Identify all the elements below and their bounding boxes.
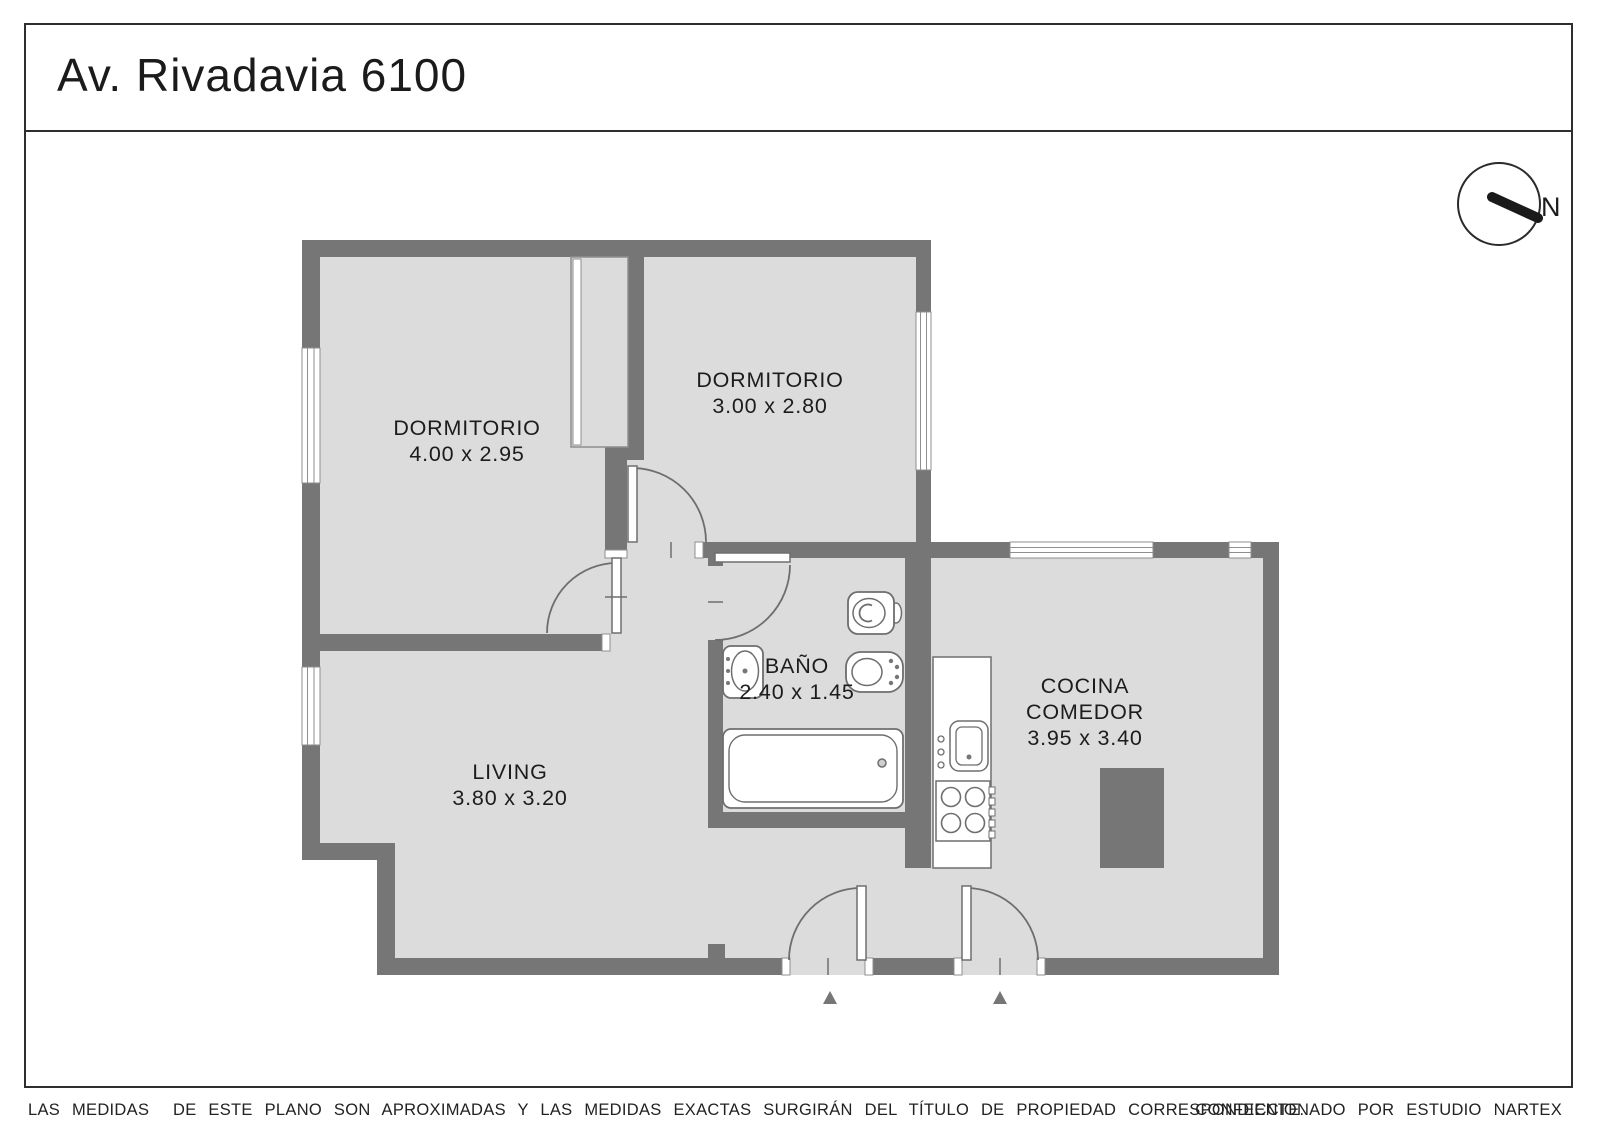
window-living bbox=[302, 667, 320, 745]
room-name: LIVING bbox=[452, 759, 567, 785]
stove-icon bbox=[936, 781, 995, 841]
jamb bbox=[782, 958, 790, 975]
wall-segment bbox=[302, 240, 320, 860]
room-name: BAÑO bbox=[739, 653, 854, 679]
room-label-cocina: COCINA COMEDOR 3.95 x 3.40 bbox=[1026, 673, 1144, 751]
wall-segment bbox=[1037, 958, 1279, 975]
wall-segment bbox=[605, 460, 627, 558]
wall-segment bbox=[377, 958, 790, 975]
room-name: DORMITORIO bbox=[393, 415, 540, 441]
room-name: DORMITORIO bbox=[696, 367, 843, 393]
compass-icon bbox=[1458, 163, 1540, 245]
wall-segment bbox=[916, 470, 931, 542]
north-label: N bbox=[1541, 192, 1561, 223]
wall-segment bbox=[708, 944, 725, 959]
entry-arrows bbox=[823, 991, 1007, 1004]
jamb bbox=[695, 542, 703, 558]
closet-icon bbox=[571, 257, 628, 447]
room-dims: 4.00 x 2.95 bbox=[393, 441, 540, 467]
entry-arrow-icon bbox=[823, 991, 837, 1004]
floor-plan-drawing bbox=[0, 0, 1600, 1130]
wall-segment bbox=[605, 446, 644, 460]
wall-segment bbox=[708, 812, 931, 828]
wall-segment bbox=[708, 640, 723, 828]
room-dims: 3.95 x 3.40 bbox=[1026, 725, 1144, 751]
room-dims: 3.00 x 2.80 bbox=[696, 393, 843, 419]
jamb bbox=[954, 958, 962, 975]
wall-segment bbox=[916, 240, 931, 312]
room-dims: 3.80 x 3.20 bbox=[452, 785, 567, 811]
wall-segment bbox=[628, 240, 644, 460]
room-label-living: LIVING 3.80 x 3.20 bbox=[452, 759, 567, 811]
footer-credit: CONFECCIONADO POR ESTUDIO NARTEX bbox=[1195, 1101, 1562, 1120]
room-label-dormitorio2: DORMITORIO 3.00 x 2.80 bbox=[696, 367, 843, 419]
wall-segment bbox=[1153, 542, 1229, 558]
jamb bbox=[1037, 958, 1045, 975]
window-cocina-1 bbox=[1010, 542, 1153, 558]
room-label-bano: BAÑO 2.40 x 1.45 bbox=[739, 653, 854, 705]
window-dormitorio1 bbox=[302, 348, 320, 483]
footer-disclaimer: LAS MEDIDAS DE ESTE PLANO SON APROXIMADA… bbox=[28, 1101, 1304, 1120]
jamb bbox=[605, 550, 627, 558]
room-name: COMEDOR bbox=[1026, 699, 1144, 725]
window-dormitorio2 bbox=[916, 312, 931, 470]
wall-segment bbox=[377, 843, 395, 975]
wall-segment bbox=[302, 634, 610, 651]
dining-table-icon bbox=[1100, 768, 1164, 868]
jamb bbox=[602, 634, 610, 651]
window-cocina-2 bbox=[1229, 542, 1251, 558]
room-dims: 2.40 x 1.45 bbox=[739, 679, 854, 705]
bathtub-icon bbox=[723, 729, 903, 808]
floor-plan-page: Av. Rivadavia 6100 bbox=[0, 0, 1600, 1130]
toilet-icon bbox=[848, 592, 902, 634]
room-label-dormitorio1: DORMITORIO 4.00 x 2.95 bbox=[393, 415, 540, 467]
wall-segment bbox=[865, 958, 962, 975]
wall-segment bbox=[1251, 542, 1279, 558]
wall-segment bbox=[302, 240, 931, 257]
room-name: COCINA bbox=[1026, 673, 1144, 699]
entry-arrow-icon bbox=[993, 991, 1007, 1004]
wall-segment bbox=[1263, 542, 1279, 975]
